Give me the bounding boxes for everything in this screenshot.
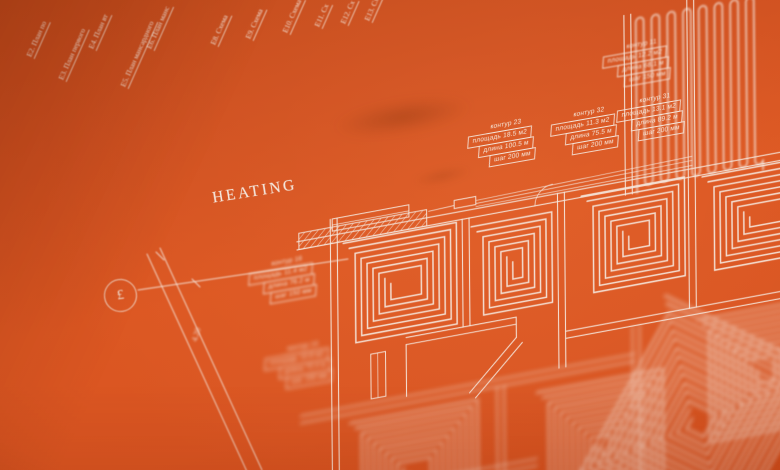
blueprint-photo: Е2. План по Е3. План первого Е4. План вт… bbox=[0, 0, 780, 470]
